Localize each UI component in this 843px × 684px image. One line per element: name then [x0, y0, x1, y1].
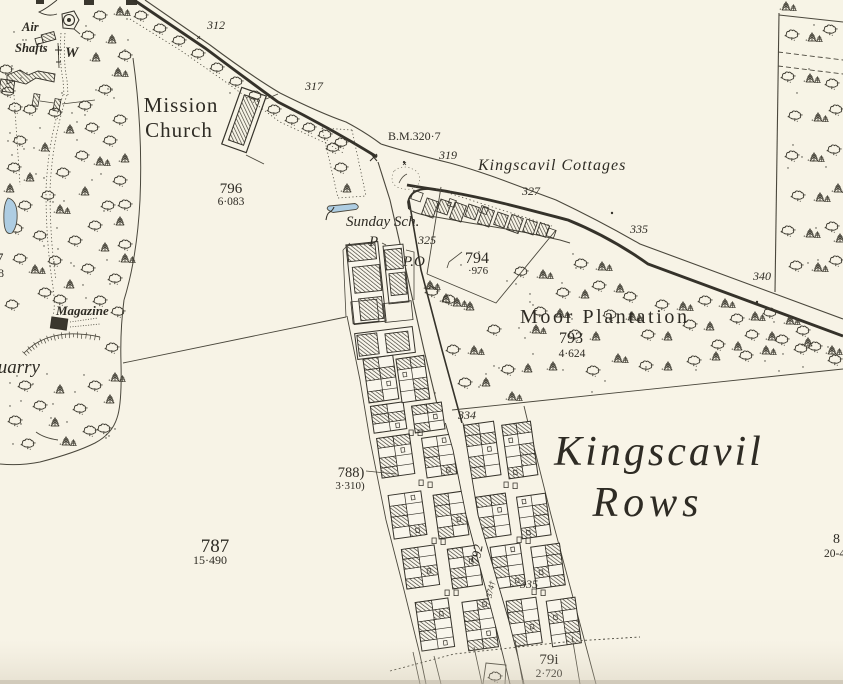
svg-text:6·083: 6·083 [218, 196, 245, 208]
svg-text:4·624: 4·624 [559, 348, 586, 360]
svg-text:8: 8 [833, 532, 840, 547]
svg-text:48: 48 [0, 266, 4, 280]
svg-text:Sunday Sch.: Sunday Sch. [346, 214, 419, 230]
svg-text:788): 788) [338, 465, 365, 481]
svg-text:Moor Plantation: Moor Plantation [520, 306, 690, 328]
svg-text:W: W [65, 45, 80, 61]
svg-text:325: 325 [417, 233, 436, 247]
svg-text:Kingscavil Cottages: Kingscavil Cottages [477, 157, 626, 174]
svg-text:P.O: P.O [402, 254, 425, 270]
svg-text:Magazine: Magazine [55, 303, 109, 318]
svg-text:15·490: 15·490 [193, 553, 227, 567]
svg-text:334: 334 [457, 408, 476, 422]
svg-text:Kingscavil: Kingscavil [553, 429, 764, 475]
svg-text:Rows: Rows [591, 480, 703, 526]
svg-text:Air: Air [21, 20, 39, 34]
svg-text:7: 7 [0, 251, 4, 267]
svg-text:B.M.320·7: B.M.320·7 [388, 129, 441, 143]
svg-text:312: 312 [206, 18, 225, 32]
svg-text:·976: ·976 [468, 265, 489, 277]
svg-text:20-4: 20-4 [824, 548, 843, 560]
svg-text:P: P [368, 234, 378, 250]
svg-text:Quarry: Quarry [0, 357, 41, 378]
svg-text:340: 340 [752, 269, 771, 283]
svg-text:Church: Church [145, 118, 213, 142]
svg-text:Shafts: Shafts [15, 41, 48, 55]
svg-text:335: 335 [629, 222, 648, 236]
svg-text:793: 793 [559, 330, 583, 347]
svg-text:327: 327 [521, 184, 541, 198]
svg-text:796: 796 [220, 181, 243, 197]
svg-text:3·310): 3·310) [335, 480, 365, 492]
svg-text:319: 319 [438, 148, 457, 162]
svg-text:Mission: Mission [144, 93, 219, 117]
svg-text:335: 335 [519, 577, 538, 591]
svg-text:317: 317 [304, 79, 324, 93]
